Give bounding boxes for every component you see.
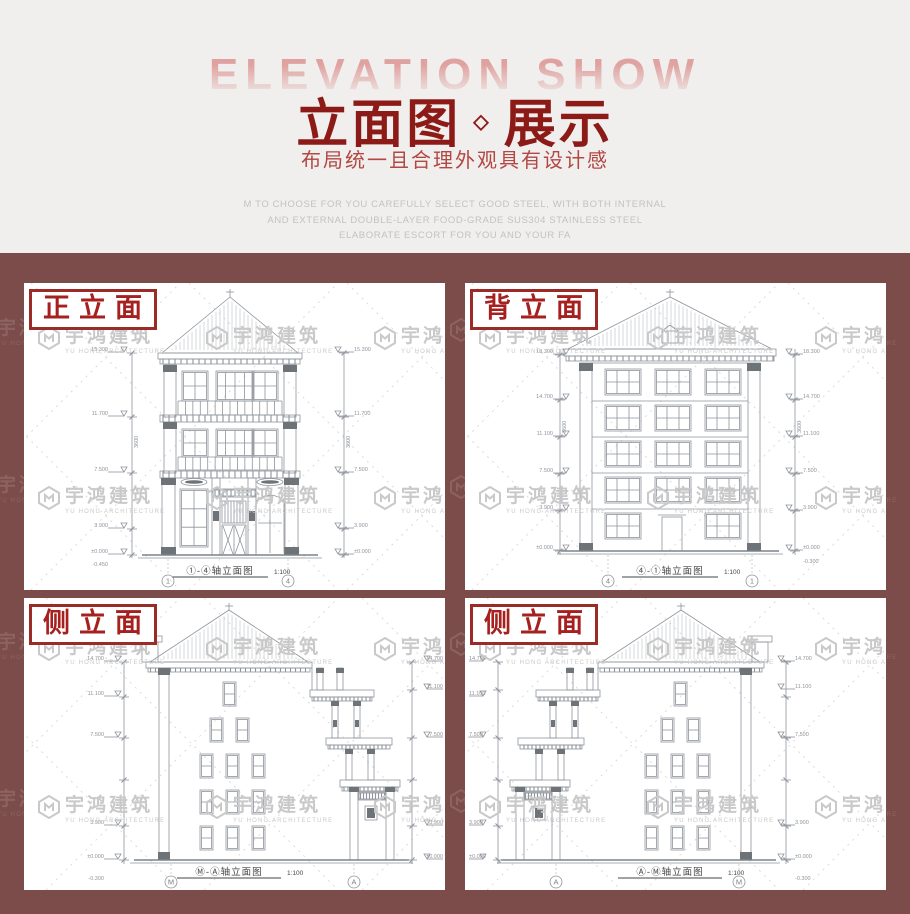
panel-label-text: 背立面: [484, 293, 592, 323]
base-level-label: -0.300: [795, 876, 811, 882]
elevation-label: 3.900: [90, 820, 104, 826]
elevation-gallery: 宇鸿建筑YU HONG ARCHITECTURE宇鸿建筑YU HONG ARCH…: [0, 253, 910, 914]
elevation-label: 3.900: [539, 505, 553, 511]
description-line: AND EXTERNAL DOUBLE-LAYER FOOD-GRADE SUS…: [0, 213, 910, 229]
panel-label-text: 正立面: [43, 293, 151, 323]
elevation-label: ±0.000: [795, 854, 812, 860]
panel-side-elevation-1: 14.70011.1007.5003.900±0.000 14.70011.10…: [24, 598, 445, 890]
elevation-label: 3.900: [354, 523, 368, 529]
elevation-label: 3.900: [94, 523, 108, 529]
elevation-label: ±0.000: [354, 549, 371, 555]
elevation-label: 7.500: [94, 467, 108, 473]
elevation-label: 14.700: [803, 394, 820, 400]
elevation-label: 18.300: [803, 349, 820, 355]
header: ELEVATION SHOW 立面图◇展示 布局统一且合理外观具有设计感 M T…: [0, 0, 910, 253]
elevation-label: 11.700: [92, 411, 108, 417]
elevation-label: 3.900: [795, 820, 809, 826]
elevation-label: 11.100: [88, 691, 104, 697]
elevation-label: 7.500: [795, 732, 809, 738]
elevation-label: 7.500: [90, 732, 104, 738]
axis-bubble: 4: [286, 577, 290, 586]
panel-front-elevation: 15.30011.7007.5003.900±0.000 15.30011.70…: [24, 283, 445, 590]
base-level-label: -0.300: [803, 559, 819, 565]
axis-bubble: A: [553, 878, 558, 887]
panel-label-text: 侧立面: [484, 608, 592, 638]
elevation-label: ±0.000: [91, 549, 108, 555]
base-level-label: -0.450: [92, 562, 108, 568]
drawing-caption: Ⓐ-Ⓜ轴立面图: [636, 866, 703, 878]
axis-bubble: A: [351, 878, 356, 887]
panel-back-elevation: 18.30014.70011.1007.5003.900±0.000 18.30…: [465, 283, 886, 590]
axis-bubble: 1: [166, 577, 170, 586]
elevation-label: ±0.000: [87, 854, 104, 860]
description-line: ELABORATE ESCORT FOR YOU AND YOUR FA: [0, 228, 910, 244]
dimension-text: 3600: [346, 436, 352, 448]
panel-label-side-2: 侧立面: [470, 604, 598, 645]
elevation-label: 7.500: [803, 468, 817, 474]
panel-label-text: 侧立面: [43, 608, 151, 638]
diamond-separator-icon: ◇: [473, 111, 491, 133]
subtitle: 布局统一且合理外观具有设计感: [0, 144, 910, 173]
panel-label-front: 正立面: [29, 289, 157, 330]
description-line: M TO CHOOSE FOR YOU CAREFULLY SELECT GOO…: [0, 197, 910, 213]
drawing-scale: 1:100: [287, 870, 304, 877]
drawing-scale: 1:100: [724, 569, 741, 576]
elevation-label: 11.100: [803, 431, 819, 437]
axis-bubble: M: [168, 878, 174, 887]
page: ELEVATION SHOW 立面图◇展示 布局统一且合理外观具有设计感 M T…: [0, 0, 910, 914]
elevation-label: 14.700: [795, 656, 812, 662]
elevation-label: 14.700: [87, 656, 104, 662]
axis-bubble: 4: [606, 577, 610, 586]
axis-bubble: 1: [750, 577, 754, 586]
base-level-label: -0.300: [88, 876, 104, 882]
elevation-label: 3.900: [803, 505, 817, 511]
elevation-label: 14.700: [536, 394, 553, 400]
drawing-caption: ④-①轴立面图: [636, 565, 703, 577]
dimension-text: 3600: [562, 421, 568, 433]
elevation-label: 7.500: [354, 467, 368, 473]
dimension-text: 3600: [134, 436, 140, 448]
elevation-label: 18.300: [536, 349, 553, 355]
drawing-caption: ①-④轴立面图: [186, 565, 253, 577]
panel-label-side-1: 侧立面: [29, 604, 157, 645]
drawing-scale: 1:100: [728, 870, 745, 877]
drawing-caption: Ⓜ-Ⓐ轴立面图: [195, 866, 262, 878]
panel-side-elevation-2: 14.70011.1007.5003.900±0.000 14.70011.10…: [465, 598, 886, 890]
panel-label-back: 背立面: [470, 289, 598, 330]
elevation-label: 7.500: [539, 468, 553, 474]
elevation-label: 11.100: [537, 431, 553, 437]
elevation-label: 11.100: [795, 684, 811, 690]
elevation-label: ±0.000: [536, 545, 553, 551]
axis-bubble: M: [736, 878, 742, 887]
elevation-label: 15.300: [354, 347, 371, 353]
elevation-label: 11.700: [354, 411, 370, 417]
dimension-text: 3600: [797, 421, 803, 433]
elevation-label: ±0.000: [803, 545, 820, 551]
description: M TO CHOOSE FOR YOU CAREFULLY SELECT GOO…: [0, 197, 910, 244]
elevation-label: 15.300: [91, 347, 108, 353]
